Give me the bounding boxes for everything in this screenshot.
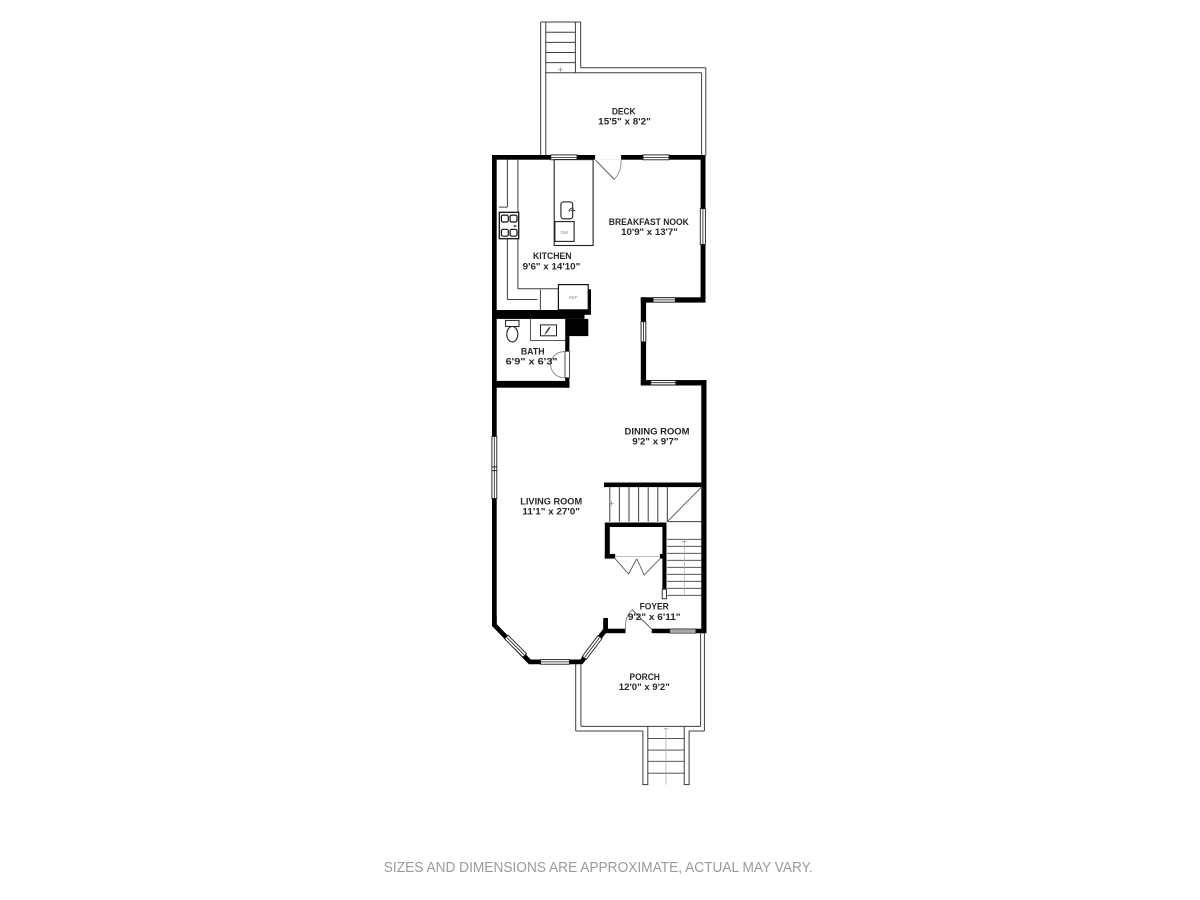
svg-text:DW: DW (561, 230, 569, 235)
svg-text:FOYER: FOYER (640, 601, 670, 611)
svg-text:10'9" x 13'7": 10'9" x 13'7" (621, 227, 678, 237)
svg-text:BREAKFAST NOOK: BREAKFAST NOOK (609, 217, 690, 227)
svg-text:PORCH: PORCH (630, 672, 660, 682)
svg-text:KITCHEN: KITCHEN (533, 251, 572, 261)
svg-text:DECK: DECK (612, 106, 636, 116)
svg-text:12'0" x 9'2": 12'0" x 9'2" (619, 682, 670, 692)
svg-text:REF: REF (569, 295, 578, 300)
svg-text:DINING ROOM: DINING ROOM (625, 427, 690, 437)
svg-text:LIVING ROOM: LIVING ROOM (520, 497, 582, 507)
svg-text:15'5" x 8'2": 15'5" x 8'2" (598, 117, 651, 127)
svg-text:11'1" x 27'0": 11'1" x 27'0" (522, 507, 580, 517)
svg-text:9'2" x 6'11": 9'2" x 6'11" (628, 612, 681, 622)
svg-text:9'6" x 14'10": 9'6" x 14'10" (523, 262, 581, 272)
svg-text:6'9" x 6'3": 6'9" x 6'3" (506, 356, 558, 366)
svg-text:BATH: BATH (521, 346, 545, 356)
svg-text:SIZES AND DIMENSIONS ARE APPRO: SIZES AND DIMENSIONS ARE APPROXIMATE, AC… (384, 860, 813, 876)
svg-text:9'2" x 9'7": 9'2" x 9'7" (632, 437, 678, 447)
